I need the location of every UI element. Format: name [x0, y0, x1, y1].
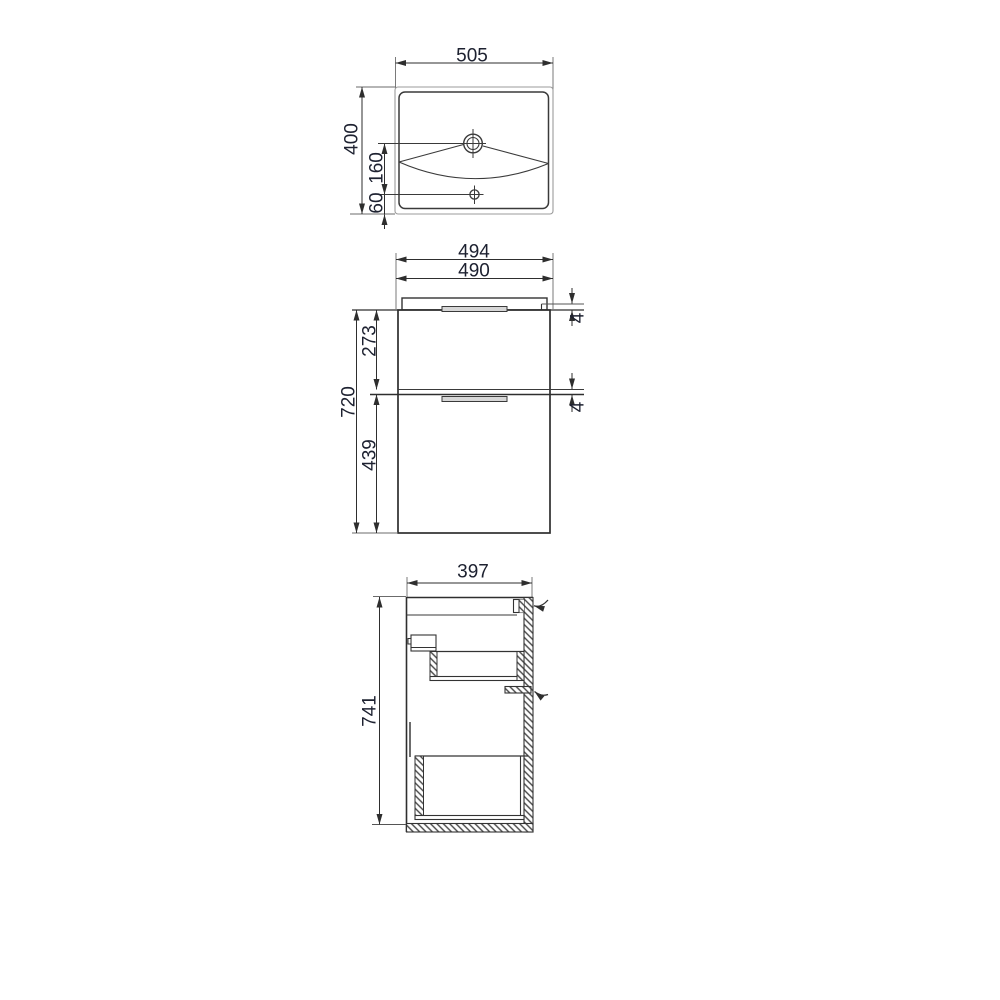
front-panel-section: [524, 598, 533, 833]
drawing-linework: [0, 0, 1000, 1000]
dim-total-height-label: 720: [340, 386, 359, 418]
dim-side-height-label: 741: [361, 695, 380, 727]
dim-upper-gap-label: 4: [569, 313, 588, 324]
middle-bracket: [505, 687, 531, 694]
dim-basin-depth-label: 400: [343, 123, 362, 155]
dim-upper-drawer-label: 273: [361, 325, 380, 357]
dim-basin-width-label: 505: [456, 47, 488, 66]
upper-drawer-handle: [442, 307, 507, 312]
dim-top-panel-width-label: 494: [458, 243, 490, 262]
dim-lower-gap-label: 4: [569, 402, 588, 413]
dim-lower-drawer-label: 439: [361, 439, 380, 471]
upper-drawer-bracket: [411, 635, 436, 651]
middle-hook-arrow: [535, 692, 549, 696]
dim-cabinet-width-label: 490: [458, 262, 490, 281]
side-view-linework: [372, 577, 548, 832]
top-hook-arrow: [534, 600, 548, 606]
cabinet-body: [398, 310, 550, 533]
front-view-linework: [352, 253, 584, 533]
lower-drawer-handle: [442, 397, 507, 402]
dim-tap-to-drain-label: 160: [368, 152, 387, 184]
basin-inner-rect: [399, 92, 549, 209]
dim-drain-to-edge-label: 60: [368, 192, 387, 213]
technical-drawing-canvas: 505 400 160 60 494 490 720 273 439 4 4 3…: [0, 0, 1000, 1000]
dim-depth-label: 397: [457, 563, 489, 582]
bottom-panel-section: [407, 824, 534, 833]
